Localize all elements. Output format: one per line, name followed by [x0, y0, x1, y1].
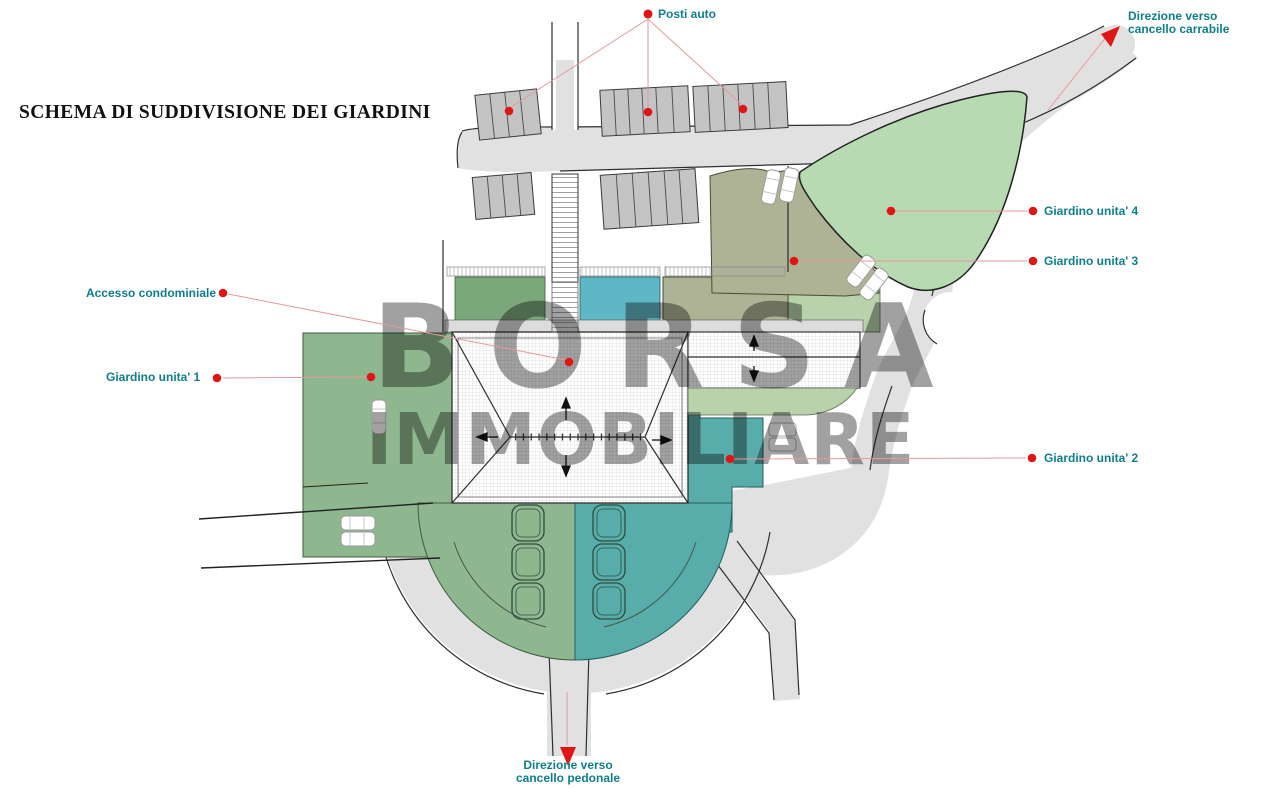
label-giardino-1: Giardino unita' 1 [106, 371, 200, 384]
page-title: SCHEMA DI SUDDIVISIONE DEI GIARDINI [19, 102, 431, 124]
label-accesso-condominiale: Accesso condominiale [58, 287, 216, 300]
marker-dot [1029, 257, 1038, 266]
label-giardino-2: Giardino unita' 2 [1044, 452, 1138, 465]
leader-lines [223, 19, 1107, 745]
label-direzione-pedonale: Direzione verso cancello pedonale [498, 759, 638, 784]
label-giardino-4: Giardino unita' 4 [1044, 205, 1138, 218]
marker-dot [219, 289, 228, 298]
label-direzione-carrabile: Direzione verso cancello carrabile [1128, 10, 1229, 35]
marker-dot [505, 107, 514, 116]
label-posti-auto: Posti auto [658, 8, 716, 21]
marker-dot [367, 373, 376, 382]
marker-dot [644, 10, 653, 19]
marker-dot [213, 374, 222, 383]
label-giardino-3: Giardino unita' 3 [1044, 255, 1138, 268]
marker-dot [739, 105, 748, 114]
marker-dots [213, 10, 1038, 464]
marker-dot [1028, 454, 1037, 463]
marker-dot [565, 358, 574, 367]
site-plan-page: BORSA IMMOBILIARE [0, 0, 1280, 788]
label-line: Direzione verso [498, 759, 638, 772]
label-line: cancello carrabile [1128, 23, 1229, 36]
marker-dot [644, 108, 653, 117]
marker-dot [1029, 207, 1038, 216]
label-line: Direzione verso [1128, 10, 1229, 23]
marker-dot [726, 455, 735, 464]
marker-dot [790, 257, 799, 266]
arrow-cancello-carrabile [1101, 26, 1120, 47]
marker-dot [887, 207, 896, 216]
label-line: cancello pedonale [498, 772, 638, 785]
